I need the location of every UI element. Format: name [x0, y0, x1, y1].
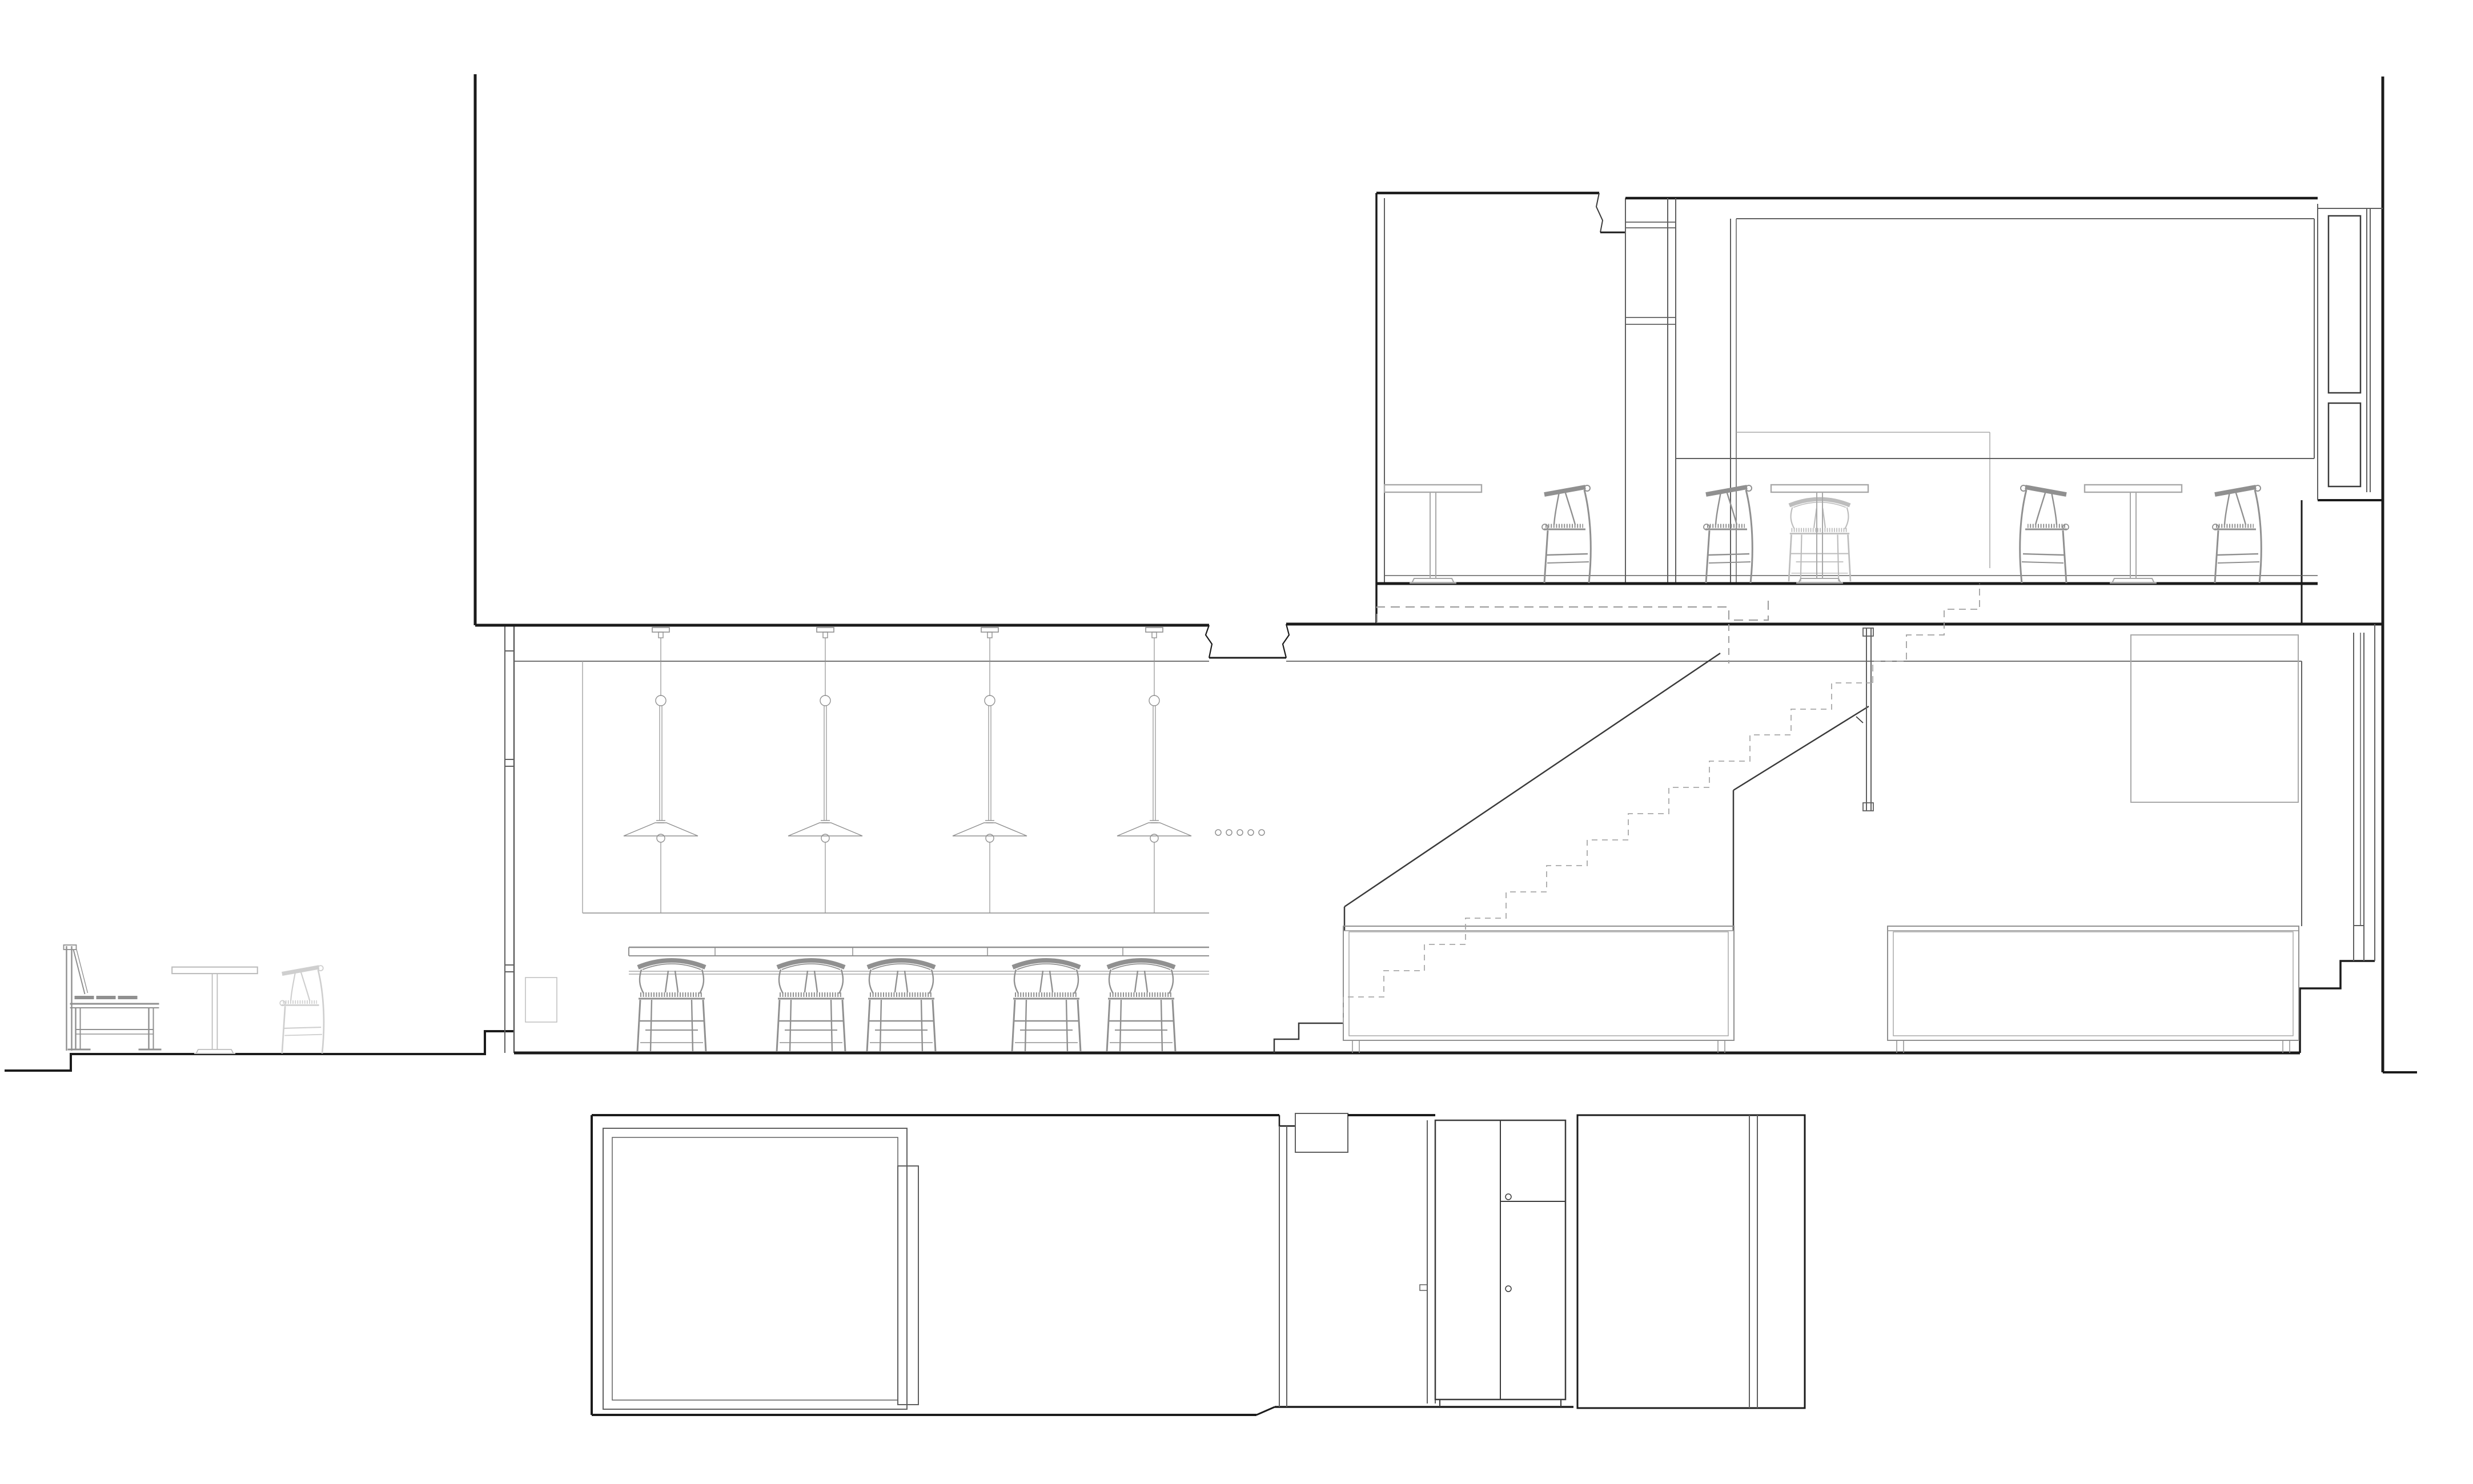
upper-chair-2 [1704, 485, 1752, 583]
coat-hook-1 [1215, 830, 1221, 835]
upper-chair-5 [2213, 485, 2261, 583]
coat-hook-5 [1259, 830, 1264, 835]
architectural-section-drawing [0, 0, 2473, 1484]
wall-picture-frame [2131, 635, 2298, 802]
outdoor-chair [280, 966, 324, 1053]
banquette-left-inner [1349, 932, 1728, 1036]
hidden-stair-steps [1343, 683, 1872, 1023]
hidden-head-steps [1873, 584, 1980, 683]
understair-soffit [1733, 706, 1869, 790]
bay-window-upper [2329, 216, 2360, 393]
upper-chair-4 [2020, 485, 2069, 583]
street-ground [5, 1031, 514, 1071]
plant-room-box [1577, 1115, 1805, 1408]
exterior-furniture-layer [64, 945, 324, 1053]
store-room-door [898, 1166, 918, 1405]
upper-table-a [1384, 485, 1482, 583]
shell-structure-layer [5, 74, 2417, 1072]
bay-window-lower [2329, 403, 2360, 486]
outdoor-table [172, 967, 258, 1053]
screen-handle [1856, 717, 1863, 723]
hall-door-handle [1420, 1285, 1427, 1290]
cupboard-handle-upper [1506, 1194, 1511, 1200]
pendant-light-1 [624, 628, 698, 913]
wall-outlet-box [525, 978, 557, 1022]
hidden-dashed-lines-layer [1343, 584, 1980, 1023]
rear-steps [2300, 961, 2375, 1053]
outdoor-bench [64, 945, 162, 1051]
coat-hook-3 [1237, 830, 1243, 835]
coat-hook-2 [1226, 830, 1232, 835]
banquette-right-inner [1893, 932, 2293, 1036]
upper-chair-1 [1542, 485, 1591, 583]
pendant-light-4 [1117, 628, 1191, 913]
upper-floor-room-layer [1376, 193, 2383, 624]
basement-floor-ramp [1256, 1407, 1275, 1415]
passage-break-right [1283, 624, 1289, 658]
rear-dining-room-layer [1888, 635, 2302, 1053]
passage-break-left [1206, 625, 1212, 658]
upper-table-c [2085, 485, 2182, 583]
pendant-light-2 [788, 628, 862, 913]
basement-recess [1295, 1113, 1348, 1152]
roof-notch-break [1596, 193, 1603, 232]
basement-top-step [1279, 1115, 1295, 1126]
screen-cap-top [1863, 628, 1873, 636]
cupboard-handle-lower [1506, 1286, 1511, 1292]
coat-hook-4 [1248, 830, 1254, 835]
staircase-layer [1274, 628, 1873, 1053]
banquette-right-outer [1888, 926, 2299, 1040]
floor-void-outline [1377, 600, 1768, 623]
stair-stringer [1344, 653, 1720, 907]
store-room-inner [612, 1137, 898, 1400]
bottom-steps [1274, 1023, 1343, 1053]
banquette-left-outer [1343, 926, 1734, 1040]
ground-floor-cafe-layer [525, 628, 1264, 1052]
basement-layer [592, 1113, 1805, 1415]
upper-chair-3 [1789, 499, 1850, 581]
store-room-outer [603, 1128, 907, 1409]
screen-cap-bottom [1863, 803, 1873, 811]
pendant-light-3 [953, 628, 1027, 913]
